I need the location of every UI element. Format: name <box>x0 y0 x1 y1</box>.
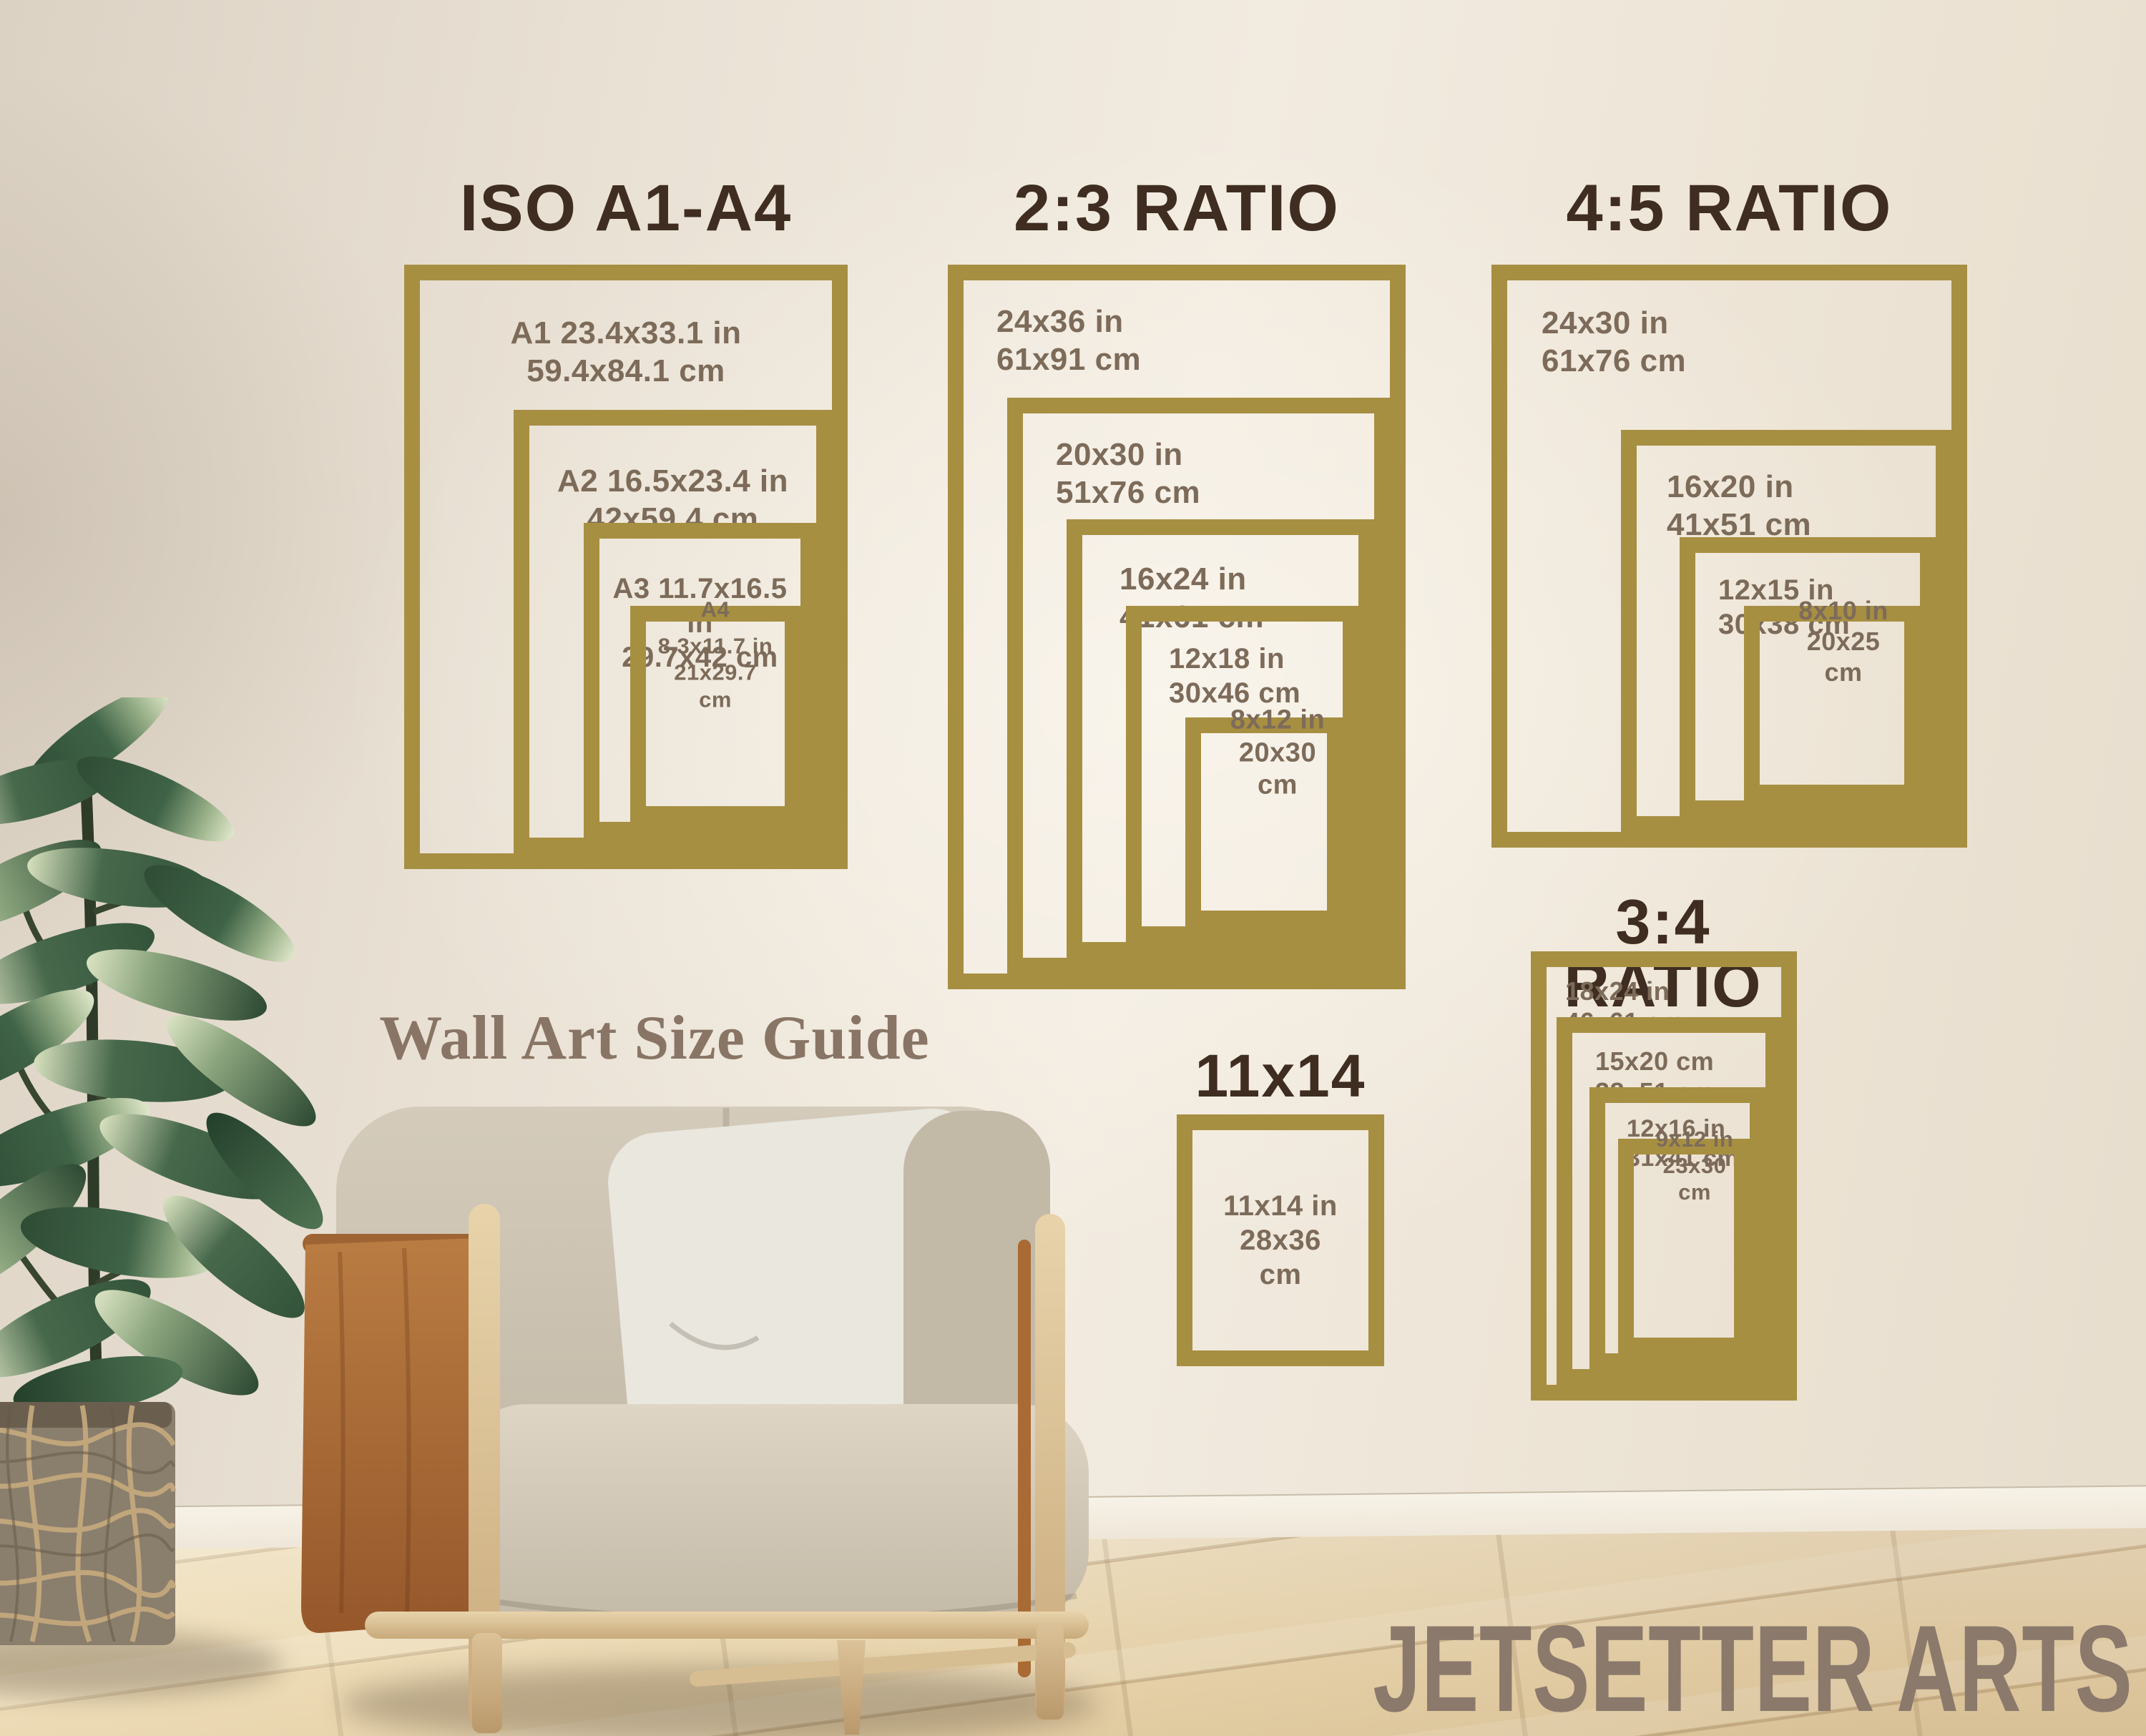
frame-12x15: 12x15 in 30x38 cm 8x10 in 20x25 cm <box>1680 537 1936 816</box>
frame-a4: A4 8.3x11.7 in 21x29.7 cm <box>630 606 800 822</box>
size-label-8x12: 8x12 in 20x30 cm <box>1228 705 1327 803</box>
size-chart-3-4-ratio: 18x24 in 46x61 cm 15x20 cm 38x51 cm 12x1… <box>1531 951 1797 1401</box>
frame-24x30: 24x30 in 61x76 cm 16x20 in 41x51 cm 12x1… <box>1491 265 1967 848</box>
frame-a2: A2 16.5x23.4 in 42x59.4 cm A3 11.7x16.5 … <box>514 410 832 853</box>
size-label-a4: A4 8.3x11.7 in 21x29.7 cm <box>646 597 785 713</box>
size-chart-11x14: 11x14 in 28x36 cm <box>1177 1114 1384 1366</box>
frame-24x36: 24x36 in 61x91 cm 20x30 in 51x76 cm 16x2… <box>948 265 1406 989</box>
chair-seat-cushion <box>458 1404 1089 1620</box>
plant-leaves <box>0 697 333 1426</box>
frame-8x10: 8x10 in 20x25 cm <box>1744 606 1920 800</box>
size-label-12x18: 12x18 in 30x46 cm <box>1169 642 1300 710</box>
frame-20x30: 20x30 in 51x76 cm 16x24 in 41x61 cm 12x1… <box>1007 398 1390 974</box>
frame-12x18: 12x18 in 30x46 cm 8x12 in 20x30 cm <box>1126 606 1358 942</box>
armchair-icon <box>297 1098 1137 1736</box>
size-label-11x14: 11x14 in 28x36 cm <box>1192 1189 1368 1292</box>
chair-left-leg <box>472 1633 502 1733</box>
frame-11x14: 11x14 in 28x36 cm <box>1177 1114 1384 1366</box>
frame-12x16: 12x16 in 31x41 cm 9x12 in 23x30 cm <box>1589 1087 1765 1369</box>
size-chart-4-5-ratio: 24x30 in 61x76 cm 16x20 in 41x51 cm 12x1… <box>1491 265 1967 848</box>
frame-16x24: 16x24 in 41x61 cm 12x18 in 30x46 cm 8x12… <box>1067 519 1374 958</box>
woven-basket <box>0 1402 175 1645</box>
frame-18x24: 18x24 in 46x61 cm 15x20 cm 38x51 cm 12x1… <box>1531 951 1797 1401</box>
size-label-16x20: 16x20 in 41x51 cm <box>1667 469 1811 544</box>
size-label-20x30: 20x30 in 51x76 cm <box>1056 436 1200 512</box>
watermark-jetsetter-arts: JETSETTER ARTS <box>1373 1607 2133 1730</box>
frame-a3: A3 11.7x16.5 in 29.7x42 cm A4 8.3x11.7 i… <box>584 523 816 838</box>
frame-16x20: 16x20 in 41x51 cm 12x15 in 30x38 cm 8x10… <box>1621 430 1951 832</box>
section-title-4-5-ratio: 4:5 RATIO <box>1491 175 1967 241</box>
frame-15x20: 15x20 cm 38x51 cm 12x16 in 31x41 cm 9x12… <box>1557 1017 1781 1385</box>
plant-icon <box>0 697 333 1727</box>
wall-art-size-guide-mockup: ISO A1-A4 2:3 RATIO 4:5 RATIO 3:4 RATIO … <box>0 0 2146 1736</box>
size-label-9x12: 9x12 in 23x30 cm <box>1655 1126 1734 1206</box>
size-chart-2-3-ratio: 24x36 in 61x91 cm 20x30 in 51x76 cm 16x2… <box>948 265 1406 989</box>
frame-a1: A1 23.4x33.1 in 59.4x84.1 cm A2 16.5x23.… <box>404 265 848 869</box>
size-label-24x36: 24x36 in 61x91 cm <box>996 303 1141 379</box>
frame-9x12: 9x12 in 23x30 cm <box>1618 1139 1750 1353</box>
caption-wall-art-size-guide: Wall Art Size Guide <box>308 1007 1001 1070</box>
chair-front-rail <box>365 1612 1089 1639</box>
chair-leather-pocket <box>301 1238 483 1633</box>
size-label-24x30: 24x30 in 61x76 cm <box>1542 305 1686 381</box>
chair-right-leg <box>1037 1624 1064 1720</box>
size-chart-iso: A1 23.4x33.1 in 59.4x84.1 cm A2 16.5x23.… <box>404 265 848 869</box>
section-title-iso: ISO A1-A4 <box>404 175 848 241</box>
frame-8x12: 8x12 in 20x30 cm <box>1185 717 1343 926</box>
size-label-8x10: 8x10 in 20x25 cm <box>1783 595 1904 688</box>
size-label-a1: A1 23.4x33.1 in 59.4x84.1 cm <box>420 315 832 391</box>
section-title-2-3-ratio: 2:3 RATIO <box>948 175 1406 241</box>
section-title-11x14: 11x14 <box>1177 1046 1384 1106</box>
